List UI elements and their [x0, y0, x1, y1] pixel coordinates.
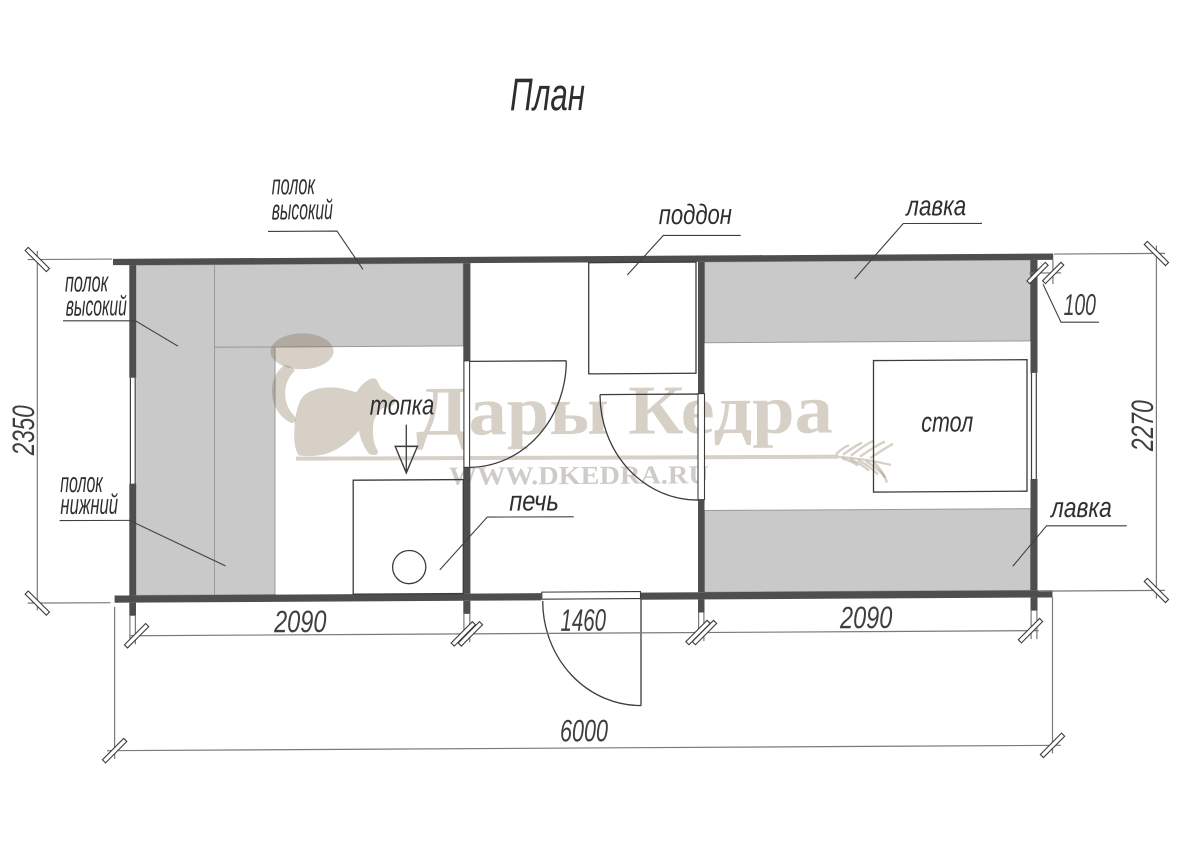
- svg-text:100: 100: [1064, 289, 1096, 322]
- svg-text:печь: печь: [509, 487, 559, 518]
- svg-text:лавка: лавка: [1049, 493, 1112, 524]
- svg-text:2090: 2090: [839, 600, 893, 635]
- svg-text:2270: 2270: [1125, 400, 1160, 452]
- svg-text:Дары Кедра: Дары Кедра: [416, 370, 833, 450]
- svg-text:топка: топка: [370, 390, 434, 422]
- svg-text:высокий: высокий: [66, 289, 127, 321]
- svg-text:6000: 6000: [560, 713, 608, 748]
- svg-text:стол: стол: [921, 407, 973, 439]
- svg-text:нижний: нижний: [60, 488, 118, 520]
- svg-text:План: План: [510, 69, 585, 121]
- svg-text:2350: 2350: [5, 405, 40, 456]
- svg-text:1460: 1460: [561, 602, 607, 638]
- svg-text:поддон: поддон: [659, 199, 732, 231]
- svg-text:лавка: лавка: [905, 191, 967, 222]
- svg-text:высокий: высокий: [272, 193, 333, 225]
- svg-text:2090: 2090: [273, 604, 327, 639]
